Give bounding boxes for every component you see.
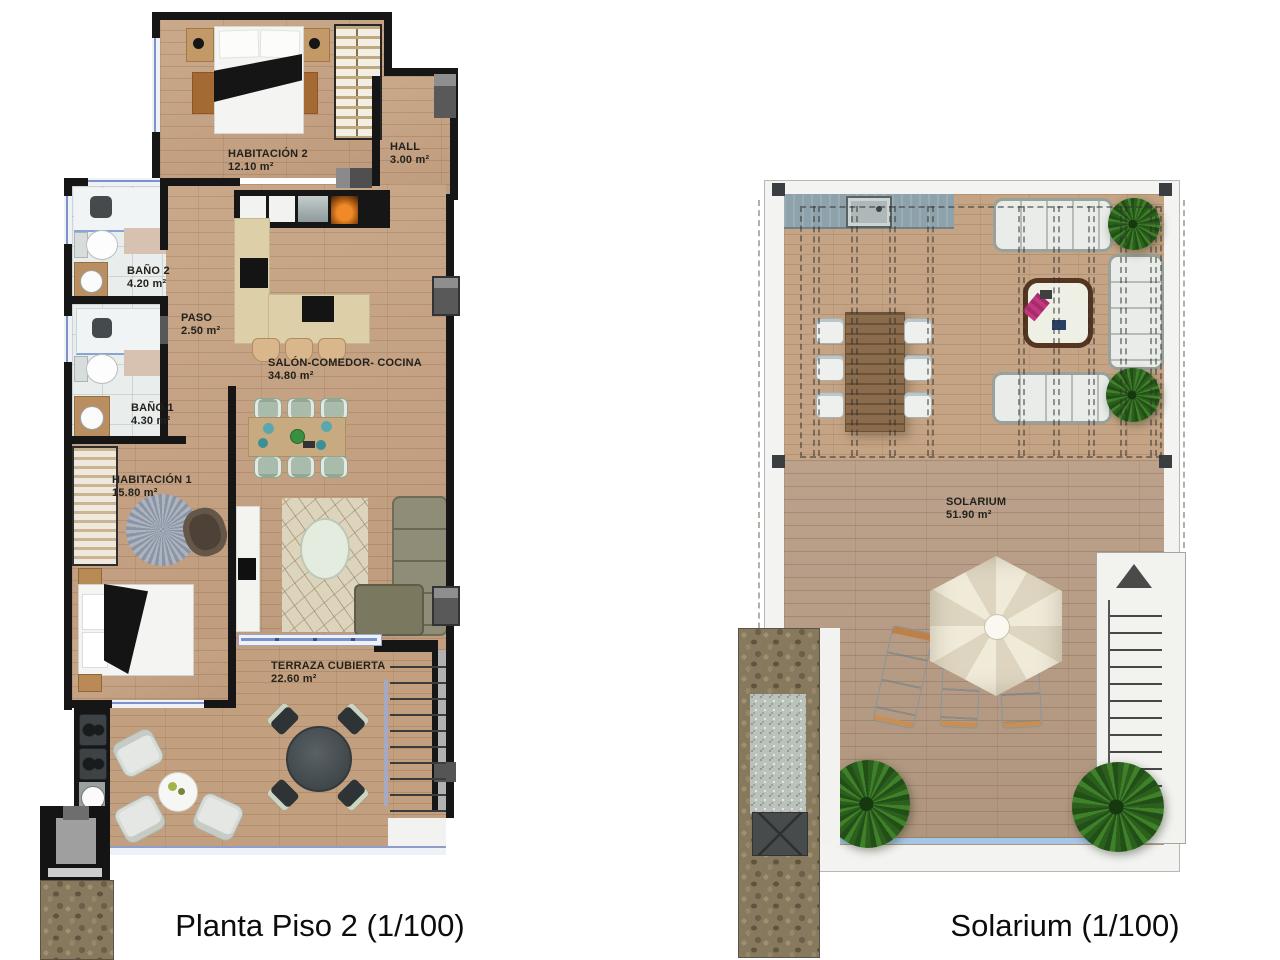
- pillow: [260, 29, 301, 58]
- toilet-bowl: [86, 354, 118, 384]
- bbq-grill: [79, 714, 107, 746]
- lamp-icon: [193, 38, 204, 49]
- wall: [446, 638, 454, 818]
- dining-chair: [320, 456, 348, 478]
- pillar: [336, 168, 372, 188]
- plan-title-solarium: Solarium (1/100): [905, 908, 1225, 944]
- shower-bano-2: [74, 188, 164, 232]
- room-area: 15.80 m²: [112, 487, 192, 500]
- planter-gravel: [750, 694, 806, 814]
- plate: [321, 421, 332, 432]
- pergola-beam: [1023, 206, 1025, 456]
- kitchen-cabinet: [269, 196, 295, 222]
- kitchen-steel-counter: [298, 196, 328, 222]
- pergola-beam: [932, 206, 934, 456]
- room-area: 22.60 m²: [271, 673, 385, 686]
- window: [152, 38, 160, 132]
- bbq-grill: [79, 748, 107, 780]
- room-area: 4.30 m²: [131, 415, 174, 428]
- room-label-hall: HALL 3.00 m²: [390, 141, 429, 167]
- wall: [374, 640, 438, 652]
- room-area: 3.00 m²: [390, 154, 429, 167]
- planter-stone: [40, 880, 114, 960]
- oven: [331, 196, 358, 224]
- room-label-habitacion-2: HABITACIÓN 2 12.10 m²: [228, 148, 308, 174]
- wall: [446, 194, 454, 646]
- pergola-beam: [927, 206, 929, 456]
- room-name: TERRAZA CUBIERTA: [271, 660, 385, 673]
- room-name: PASO: [181, 312, 220, 325]
- room-name: SOLARIUM: [946, 496, 1006, 509]
- wall: [160, 186, 168, 250]
- food-plate: [178, 788, 185, 795]
- pergola-beam: [889, 206, 891, 456]
- wall: [152, 12, 392, 20]
- wall: [64, 178, 72, 710]
- coffee-table-oval: [300, 518, 350, 580]
- cooktop: [240, 258, 268, 288]
- stair-railing: [384, 680, 388, 806]
- sofa-chaise: [354, 584, 424, 636]
- room-label-salon: SALÓN-COMEDOR- COCINA 34.80 m²: [268, 357, 422, 383]
- room-label-bano-2: BAÑO 2 4.20 m²: [127, 265, 170, 291]
- window: [64, 316, 72, 362]
- room-label-paso: PASO 2.50 m²: [181, 312, 220, 338]
- pillar: [432, 586, 460, 626]
- island-sink: [302, 296, 334, 322]
- corner-tick: [772, 183, 785, 196]
- chimney-inner: [56, 818, 96, 864]
- wall: [372, 76, 380, 186]
- pergola-beam: [1120, 206, 1122, 456]
- room-area: 4.20 m²: [127, 278, 170, 291]
- pergola-beam: [1088, 206, 1090, 456]
- dining-chair: [287, 456, 315, 478]
- tv: [238, 558, 256, 580]
- sliding-door-glass: [241, 638, 377, 641]
- pergola-outline: [800, 206, 1162, 458]
- sink-round: [80, 270, 103, 293]
- wall: [384, 12, 392, 76]
- plate: [258, 438, 268, 448]
- lamp-icon: [309, 38, 320, 49]
- terrace-railing: [108, 846, 446, 855]
- pergola-beam: [818, 206, 820, 456]
- room-label-terraza: TERRAZA CUBIERTA 22.60 m²: [271, 660, 385, 686]
- pergola-beam: [1018, 206, 1020, 456]
- pergola-beam: [856, 206, 858, 456]
- door-bano-1: [160, 316, 168, 344]
- bed-post: [78, 674, 102, 692]
- chimney-cap: [63, 806, 89, 820]
- planter-drain: [752, 812, 808, 856]
- room-area: 2.50 m²: [181, 325, 220, 338]
- pergola-beam: [1150, 206, 1152, 456]
- room-name: BAÑO 2: [127, 265, 170, 278]
- pergola-beam: [1155, 206, 1157, 456]
- pergola-beam: [1053, 206, 1055, 456]
- window: [88, 178, 160, 186]
- window: [64, 196, 72, 244]
- toilet-bowl: [86, 230, 118, 260]
- pillar: [434, 74, 456, 118]
- sink-round: [80, 406, 104, 430]
- shower-head-icon: [92, 318, 112, 338]
- plate: [316, 440, 326, 450]
- parasol-hub: [984, 614, 1010, 640]
- pillar: [432, 276, 460, 316]
- wall: [228, 386, 236, 708]
- wardrobe-habitacion-1: [72, 446, 118, 566]
- wall: [64, 296, 166, 304]
- plate: [263, 423, 274, 434]
- food-plate: [168, 782, 177, 791]
- wall: [160, 296, 168, 316]
- wall: [64, 436, 186, 444]
- room-area: 12.10 m²: [228, 161, 308, 174]
- room-name: HABITACIÓN 2: [228, 148, 308, 161]
- plant: [1072, 762, 1164, 852]
- pergola-beam: [1058, 206, 1060, 456]
- terrace-table: [286, 726, 352, 792]
- table-item: [303, 441, 315, 448]
- room-name: HABITACIÓN 1: [112, 474, 192, 487]
- stairs-up-arrow-icon: [1116, 564, 1152, 588]
- pergola-beam: [813, 206, 815, 456]
- room-name: SALÓN-COMEDOR- COCINA: [268, 357, 422, 370]
- pergola-beam: [1093, 206, 1095, 456]
- pergola-beam: [851, 206, 853, 456]
- room-label-solarium: SOLARIUM 51.90 m²: [946, 496, 1006, 522]
- corner-tick: [772, 455, 785, 468]
- room-area: 34.80 m²: [268, 370, 422, 383]
- stairs-terraza: [390, 652, 446, 812]
- pillow: [219, 29, 260, 58]
- corner-tick: [1159, 183, 1172, 196]
- door-habitacion-1-terraza: [112, 700, 204, 708]
- room-label-bano-1: BAÑO 1 4.30 m²: [131, 402, 174, 428]
- room-name: BAÑO 1: [131, 402, 174, 415]
- chimney-base-bar: [48, 868, 102, 877]
- pergola-beam: [894, 206, 896, 456]
- shower-bano-1: [76, 308, 162, 355]
- plan-title-planta-piso-2: Planta Piso 2 (1/100): [150, 908, 490, 944]
- room-area: 51.90 m²: [946, 509, 1006, 522]
- pergola-beam: [1125, 206, 1127, 456]
- room-label-habitacion-1: HABITACIÓN 1 15.80 m²: [112, 474, 192, 500]
- dining-chair: [254, 456, 282, 478]
- walkway-strip: [818, 628, 840, 845]
- shower-head-icon: [90, 196, 112, 218]
- sliding-door: [238, 634, 382, 646]
- stairs-landing: [388, 818, 446, 846]
- floorplan-canvas: HABITACIÓN 2 12.10 m² HALL 3.00 m² BAÑO …: [0, 0, 1280, 960]
- room-name: HALL: [390, 141, 429, 154]
